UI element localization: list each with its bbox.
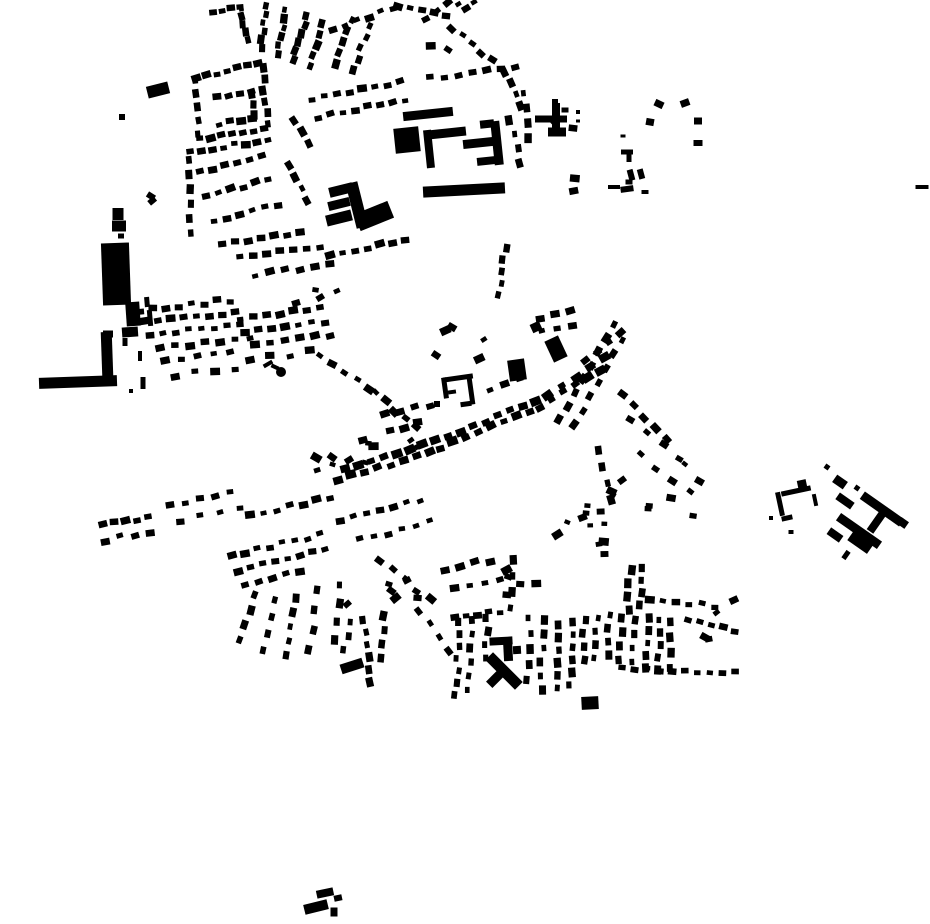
house-footprint <box>651 464 660 473</box>
house-footprint <box>482 641 487 648</box>
house-footprint <box>354 376 362 383</box>
building-footprint <box>621 150 633 155</box>
building-footprint <box>141 377 146 389</box>
house-footprint <box>363 628 369 636</box>
house-footprint <box>684 616 693 623</box>
house-footprint <box>275 50 282 59</box>
house-footprint <box>299 184 306 192</box>
house-footprint <box>400 237 409 244</box>
house-footprint <box>210 368 220 376</box>
house-footprint <box>615 327 627 338</box>
house-footprint <box>283 232 292 239</box>
house-footprint <box>342 599 352 608</box>
house-footprint <box>672 599 681 605</box>
house-footprint <box>280 336 289 344</box>
house-footprint <box>540 629 547 639</box>
building-footprint <box>694 140 703 146</box>
house-footprint <box>331 58 341 69</box>
house-footprint <box>310 452 323 464</box>
house-footprint <box>248 207 256 214</box>
house-footprint <box>507 604 513 611</box>
house-footprint <box>154 317 162 324</box>
house-footprint <box>359 616 366 625</box>
building-footprint <box>812 494 818 507</box>
house-footprint <box>331 635 339 645</box>
house-footprint <box>443 45 453 54</box>
house-footprint <box>278 539 285 545</box>
house-footprint <box>569 187 579 195</box>
house-footprint <box>295 551 305 560</box>
house-footprint <box>312 39 323 51</box>
house-footprint <box>250 128 258 135</box>
house-footprint <box>591 655 596 662</box>
house-footprint <box>446 23 457 34</box>
house-footprint <box>236 117 247 125</box>
round-building-footprint <box>276 367 286 377</box>
house-footprint <box>526 615 531 621</box>
house-footprint <box>384 531 393 539</box>
house-footprint <box>502 591 511 598</box>
house-footprint <box>260 19 266 26</box>
building-footprint <box>544 335 567 362</box>
house-footprint <box>412 418 422 426</box>
building-footprint <box>316 887 334 898</box>
house-footprint <box>336 598 345 609</box>
house-footprint <box>250 340 261 348</box>
house-footprint <box>556 646 562 654</box>
house-footprint <box>194 102 202 112</box>
building-footprint <box>645 118 654 126</box>
building-footprint <box>552 99 558 105</box>
house-footprint <box>381 626 388 634</box>
house-footprint <box>259 44 265 52</box>
house-footprint <box>281 24 287 32</box>
house-footprint <box>681 668 689 674</box>
house-footprint <box>379 452 389 461</box>
house-footprint <box>526 660 533 669</box>
house-footprint <box>261 97 268 106</box>
building-footprint <box>854 485 861 492</box>
house-footprint <box>465 687 470 693</box>
building-footprint <box>129 389 133 393</box>
house-footprint <box>313 585 320 594</box>
house-footprint <box>213 72 220 78</box>
house-footprint <box>388 503 399 512</box>
house-footprint <box>186 148 194 155</box>
house-footprint <box>569 643 575 651</box>
building-footprint <box>434 401 440 407</box>
house-footprint <box>459 31 467 38</box>
house-footprint <box>480 336 487 343</box>
house-footprint <box>511 63 520 71</box>
house-footprint <box>526 644 534 654</box>
house-footprint <box>225 117 234 124</box>
house-footprint <box>310 605 317 614</box>
house-footprint <box>295 333 305 341</box>
house-footprint <box>666 494 676 502</box>
house-footprint <box>224 92 233 100</box>
house-footprint <box>264 176 272 182</box>
house-footprint <box>463 613 470 619</box>
house-footprint <box>286 353 294 360</box>
house-footprint <box>291 299 301 307</box>
house-footprint <box>145 529 155 537</box>
house-footprint <box>631 630 637 638</box>
house-footprint <box>254 578 263 586</box>
house-footprint <box>145 332 154 339</box>
house-footprint <box>316 304 324 311</box>
house-footprint <box>585 391 594 401</box>
house-footprint <box>246 564 254 571</box>
house-footprint <box>234 210 245 219</box>
house-footprint <box>681 461 688 468</box>
house-footprint <box>144 513 152 520</box>
house-footprint <box>170 373 180 381</box>
building-footprint <box>620 185 634 193</box>
house-footprint <box>286 637 293 645</box>
house-footprint <box>595 541 602 547</box>
house-footprint <box>274 202 283 209</box>
house-footprint <box>645 626 652 635</box>
house-footprint <box>245 356 256 365</box>
house-footprint <box>497 610 504 615</box>
house-footprint <box>365 677 374 688</box>
house-footprint <box>195 167 204 174</box>
house-footprint <box>288 607 297 618</box>
house-footprint <box>218 8 225 14</box>
house-footprint <box>351 248 360 255</box>
house-footprint <box>657 628 663 636</box>
house-footprint <box>563 401 574 413</box>
house-footprint <box>553 325 561 331</box>
house-footprint <box>262 311 271 319</box>
house-footprint <box>159 330 167 336</box>
house-footprint <box>355 55 364 65</box>
house-footprint <box>267 574 278 583</box>
house-footprint <box>383 82 392 89</box>
house-footprint <box>250 100 256 108</box>
house-footprint <box>340 369 349 377</box>
house-footprint <box>450 613 460 621</box>
house-footprint <box>216 509 223 515</box>
house-footprint <box>457 643 463 650</box>
house-footprint <box>385 581 393 588</box>
building-footprint <box>513 646 521 654</box>
building-footprint <box>503 639 513 661</box>
house-footprint <box>308 319 315 325</box>
house-footprint <box>205 133 217 143</box>
house-footprint <box>245 36 252 44</box>
house-footprint <box>637 450 645 458</box>
house-footprint <box>130 532 139 540</box>
house-footprint <box>555 620 562 629</box>
house-footprint <box>600 551 608 557</box>
house-footprint <box>598 462 606 472</box>
building-footprint <box>393 126 420 153</box>
house-footprint <box>237 505 244 510</box>
house-footprint <box>481 66 491 75</box>
house-footprint <box>372 462 383 472</box>
house-footprint <box>316 30 324 39</box>
house-footprint <box>282 651 289 660</box>
house-footprint <box>290 45 299 56</box>
house-footprint <box>454 562 465 572</box>
house-footprint <box>226 348 235 355</box>
house-footprint <box>371 83 379 89</box>
house-footprint <box>195 130 201 137</box>
house-footprint <box>630 666 639 673</box>
house-footprint <box>698 600 706 607</box>
house-footprint <box>265 352 275 359</box>
house-footprint <box>639 564 645 572</box>
house-footprint <box>226 4 235 11</box>
house-footprint <box>246 605 255 616</box>
house-footprint <box>285 501 294 509</box>
house-footprint <box>579 406 588 415</box>
house-footprint <box>120 516 131 526</box>
building-footprint <box>477 156 496 166</box>
house-footprint <box>646 613 653 623</box>
house-footprint <box>509 555 517 565</box>
building-footprint <box>123 338 128 346</box>
building-footprint <box>835 493 854 510</box>
house-footprint <box>259 560 267 566</box>
house-footprint <box>298 501 309 510</box>
house-footprint <box>314 115 322 122</box>
house-footprint <box>413 594 422 601</box>
house-footprint <box>568 667 576 677</box>
house-footprint <box>524 133 531 143</box>
house-footprint <box>516 581 524 588</box>
house-footprint <box>238 129 247 136</box>
house-footprint <box>236 321 244 327</box>
house-footprint <box>666 632 674 642</box>
house-footprint <box>225 183 237 193</box>
house-footprint <box>487 54 498 64</box>
house-footprint <box>638 588 646 598</box>
house-footprint <box>374 555 385 566</box>
house-footprint <box>629 659 634 666</box>
house-footprint <box>604 624 611 633</box>
house-footprint <box>378 639 385 648</box>
house-footprint <box>555 633 562 643</box>
house-footprint <box>485 608 493 614</box>
house-footprint <box>186 184 194 194</box>
house-footprint <box>645 640 650 647</box>
house-footprint <box>186 214 193 223</box>
building-footprint <box>789 530 794 534</box>
house-footprint <box>650 422 662 434</box>
house-footprint <box>303 246 311 252</box>
house-footprint <box>569 655 576 664</box>
house-footprint <box>302 307 311 314</box>
house-footprint <box>261 74 268 83</box>
house-footprint <box>553 658 561 668</box>
house-footprint <box>485 557 496 566</box>
house-footprint <box>581 655 589 664</box>
house-footprint <box>638 412 649 423</box>
house-footprint <box>308 548 317 555</box>
house-footprint <box>395 77 404 85</box>
house-footprint <box>282 570 290 577</box>
house-footprint <box>457 630 463 638</box>
house-footprint <box>266 340 274 346</box>
house-footprint <box>268 613 275 622</box>
house-footprint <box>250 177 261 187</box>
house-footprint <box>216 131 225 139</box>
building-footprint <box>653 99 664 109</box>
house-footprint <box>196 512 203 518</box>
house-footprint <box>628 565 637 576</box>
house-footprint <box>288 306 299 315</box>
house-footprint <box>261 27 267 35</box>
house-footprint <box>571 388 580 398</box>
house-footprint <box>220 145 227 151</box>
house-footprint <box>376 101 385 109</box>
house-footprint <box>645 596 655 604</box>
house-footprint <box>201 192 210 200</box>
house-footprint <box>349 512 357 519</box>
house-footprint <box>440 566 450 574</box>
house-footprint <box>541 615 548 625</box>
house-footprint <box>295 567 306 576</box>
house-footprint <box>483 655 488 662</box>
house-footprint <box>495 291 502 299</box>
building-footprint <box>916 185 929 189</box>
house-footprint <box>297 28 305 38</box>
house-footprint <box>325 260 335 268</box>
house-footprint <box>254 326 263 333</box>
house-footprint <box>579 629 586 638</box>
house-footprint <box>313 467 321 474</box>
house-footprint <box>426 517 433 523</box>
house-footprint <box>497 66 506 73</box>
house-footprint <box>506 77 516 88</box>
building-footprint <box>608 185 620 189</box>
house-footprint <box>363 102 372 110</box>
house-footprint <box>260 125 269 132</box>
house-footprint <box>247 115 257 123</box>
house-footprint <box>363 510 371 516</box>
house-footprint <box>196 147 206 155</box>
house-footprint <box>243 237 253 245</box>
house-footprint <box>264 267 275 276</box>
house-footprint <box>605 650 612 659</box>
house-footprint <box>568 322 578 330</box>
house-footprint <box>426 42 436 50</box>
house-footprint <box>618 613 625 622</box>
house-footprint <box>644 666 650 671</box>
house-footprint <box>718 670 726 676</box>
house-footprint <box>518 401 529 410</box>
building-footprint <box>333 894 342 902</box>
house-footprint <box>328 26 338 35</box>
house-footprint <box>469 630 475 637</box>
building-footprint <box>448 389 456 394</box>
house-footprint <box>289 171 300 183</box>
house-footprint <box>515 144 522 153</box>
house-footprint <box>334 48 343 58</box>
house-footprint <box>468 69 477 76</box>
house-footprint <box>321 93 328 98</box>
building-footprint <box>138 351 142 361</box>
house-footprint <box>375 506 384 513</box>
house-footprint <box>484 626 492 636</box>
house-footprint <box>287 623 293 630</box>
house-footprint <box>263 11 269 19</box>
house-footprint <box>232 337 239 342</box>
house-footprint <box>215 338 226 347</box>
house-footprint <box>195 116 202 124</box>
house-footprint <box>345 89 354 96</box>
house-footprint <box>468 39 477 47</box>
house-footprint <box>521 90 526 97</box>
house-footprint <box>601 522 607 527</box>
house-footprint <box>730 628 738 635</box>
house-footprint <box>365 665 373 675</box>
house-footprint <box>262 2 269 10</box>
house-footprint <box>332 475 343 485</box>
house-footprint <box>597 508 605 514</box>
house-footprint <box>568 124 577 131</box>
house-footprint <box>395 407 406 416</box>
house-footprint <box>275 310 286 319</box>
house-footprint <box>541 645 546 652</box>
house-footprint <box>271 596 278 604</box>
house-footprint <box>482 614 488 622</box>
house-footprint <box>239 184 248 192</box>
house-footprint <box>385 427 394 435</box>
building-footprint-canvas <box>0 0 930 924</box>
house-footprint <box>403 499 410 506</box>
building-footprint <box>113 208 124 220</box>
house-footprint <box>359 468 369 476</box>
house-footprint <box>441 75 449 81</box>
house-footprint <box>401 414 410 423</box>
house-footprint <box>424 446 436 457</box>
house-footprint <box>280 265 289 273</box>
house-footprint <box>267 325 277 333</box>
house-footprint <box>555 685 560 692</box>
house-footprint <box>499 379 510 389</box>
house-footprint <box>239 549 250 558</box>
house-footprint <box>297 126 308 138</box>
building-footprint <box>327 197 351 211</box>
house-footprint <box>339 250 346 256</box>
building-footprint <box>576 120 580 123</box>
building-footprint <box>331 908 338 917</box>
building-footprint <box>39 375 117 389</box>
house-footprint <box>442 12 451 19</box>
house-footprint <box>398 423 410 433</box>
house-footprint <box>295 322 302 328</box>
house-footprint <box>686 487 694 495</box>
house-footprint <box>211 218 218 224</box>
house-footprint <box>345 632 351 640</box>
building-footprint <box>428 127 467 140</box>
house-footprint <box>271 558 280 565</box>
house-footprint <box>643 428 651 436</box>
house-footprint <box>667 648 675 658</box>
house-footprint <box>658 641 664 649</box>
house-footprint <box>98 520 108 529</box>
house-footprint <box>261 203 269 210</box>
house-footprint <box>222 215 232 223</box>
building-footprint <box>467 377 476 404</box>
house-footprint <box>564 519 571 525</box>
building-footprint <box>122 326 139 337</box>
house-footprint <box>209 9 217 16</box>
